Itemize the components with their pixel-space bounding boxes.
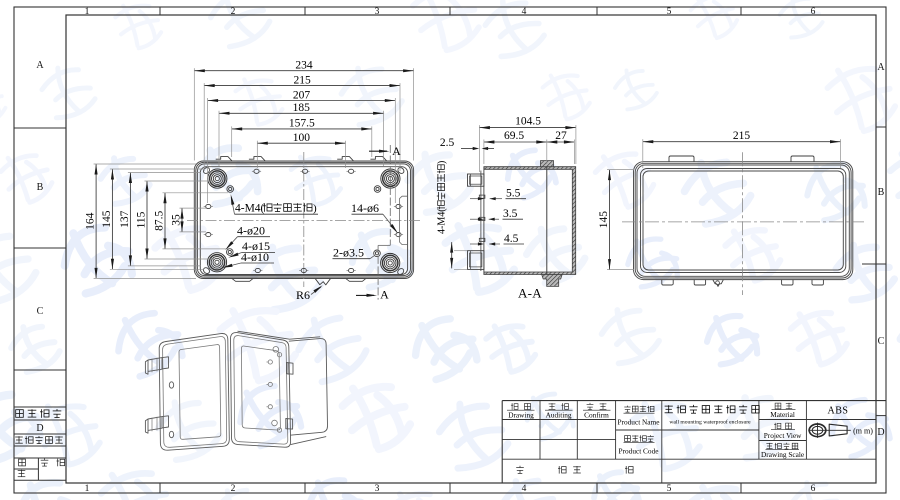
svg-text:87.5: 87.5 [154, 211, 166, 231]
svg-text:207: 207 [293, 89, 311, 101]
svg-text:A-A: A-A [518, 286, 542, 301]
svg-text:5.5: 5.5 [506, 188, 521, 200]
svg-text:164: 164 [85, 212, 97, 230]
svg-text:14-ø6: 14-ø6 [351, 201, 379, 215]
svg-text:B: B [878, 187, 885, 198]
svg-text:Project View: Project View [764, 431, 802, 440]
svg-text:A: A [380, 288, 389, 302]
svg-text:B: B [37, 182, 44, 193]
svg-text:A: A [36, 60, 44, 71]
svg-text:35: 35 [171, 214, 183, 226]
svg-text:A: A [877, 62, 885, 73]
svg-text:2: 2 [231, 484, 236, 494]
svg-text:2-ø3.5: 2-ø3.5 [333, 246, 364, 260]
svg-text:3: 3 [375, 484, 380, 494]
svg-text:4-ø20: 4-ø20 [237, 224, 265, 238]
svg-text:234: 234 [295, 60, 313, 72]
svg-text:D: D [36, 423, 43, 434]
svg-text:6: 6 [811, 484, 816, 494]
svg-text:137: 137 [119, 210, 131, 228]
svg-text:C: C [37, 306, 44, 317]
svg-text:215: 215 [733, 130, 751, 142]
svg-text:(m m): (m m) [853, 426, 873, 435]
svg-text:145: 145 [101, 210, 113, 228]
svg-text:4: 4 [522, 7, 527, 17]
svg-text:69.5: 69.5 [504, 130, 524, 142]
svg-text:1: 1 [85, 484, 90, 494]
svg-text:): ) [313, 203, 317, 215]
svg-text:D: D [877, 427, 884, 438]
svg-text:C: C [878, 336, 885, 347]
svg-text:2.5: 2.5 [440, 137, 455, 149]
svg-text:4-ø10: 4-ø10 [241, 250, 269, 264]
svg-text:3: 3 [375, 7, 380, 17]
svg-text:Drawing: Drawing [508, 410, 534, 419]
svg-text:27: 27 [555, 130, 567, 142]
svg-text:): ) [437, 161, 448, 164]
svg-text:145: 145 [598, 211, 610, 229]
svg-text:4.5: 4.5 [504, 233, 519, 245]
svg-text:5: 5 [667, 484, 672, 494]
svg-text:100: 100 [293, 132, 311, 144]
svg-text:Confirm: Confirm [584, 410, 609, 419]
svg-text:ABS: ABS [828, 405, 849, 416]
svg-text:4-M4(: 4-M4( [235, 203, 265, 215]
svg-text:Auditing: Auditing [546, 410, 572, 419]
svg-text:4-M4(: 4-M4( [437, 208, 448, 234]
svg-text:5: 5 [667, 7, 672, 17]
svg-text:1: 1 [85, 7, 90, 17]
svg-text:115: 115 [136, 211, 148, 228]
svg-text:Drawing Scale: Drawing Scale [761, 450, 804, 459]
svg-text:6: 6 [811, 7, 816, 17]
svg-text:3.5: 3.5 [503, 208, 518, 220]
svg-text:104.5: 104.5 [515, 116, 541, 128]
svg-text:wall mounting waterproof enclo: wall mounting waterproof enclosure [669, 418, 751, 425]
svg-text:2: 2 [231, 7, 236, 17]
svg-text:215: 215 [293, 74, 311, 86]
svg-text:Product Name: Product Name [618, 418, 660, 427]
svg-text:4: 4 [522, 484, 527, 494]
svg-text:A: A [392, 144, 401, 158]
svg-text:157.5: 157.5 [289, 118, 315, 130]
svg-text:Product Code: Product Code [619, 447, 659, 456]
svg-text:Material: Material [770, 410, 795, 419]
svg-text:R6: R6 [296, 288, 310, 302]
svg-text:185: 185 [293, 102, 311, 114]
